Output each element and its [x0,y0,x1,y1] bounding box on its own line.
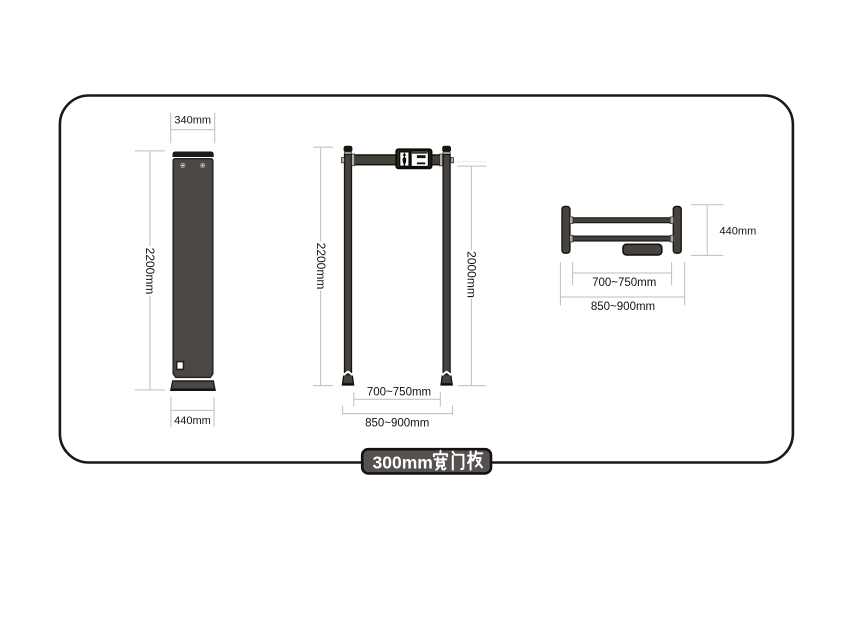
svg-text:2000mm: 2000mm [464,251,478,298]
svg-text:340mm: 340mm [174,115,211,127]
svg-text:850~900mm: 850~900mm [591,301,655,313]
svg-text:440mm: 440mm [720,226,757,238]
svg-text:440mm: 440mm [174,415,211,427]
svg-text:850~900mm: 850~900mm [365,417,429,429]
svg-text:2200mm: 2200mm [314,243,328,290]
svg-text:300mm: 300mm [373,453,433,473]
svg-text:2200mm: 2200mm [143,248,157,295]
svg-text:700~750mm: 700~750mm [592,277,656,289]
svg-text:700~750mm: 700~750mm [367,386,431,398]
